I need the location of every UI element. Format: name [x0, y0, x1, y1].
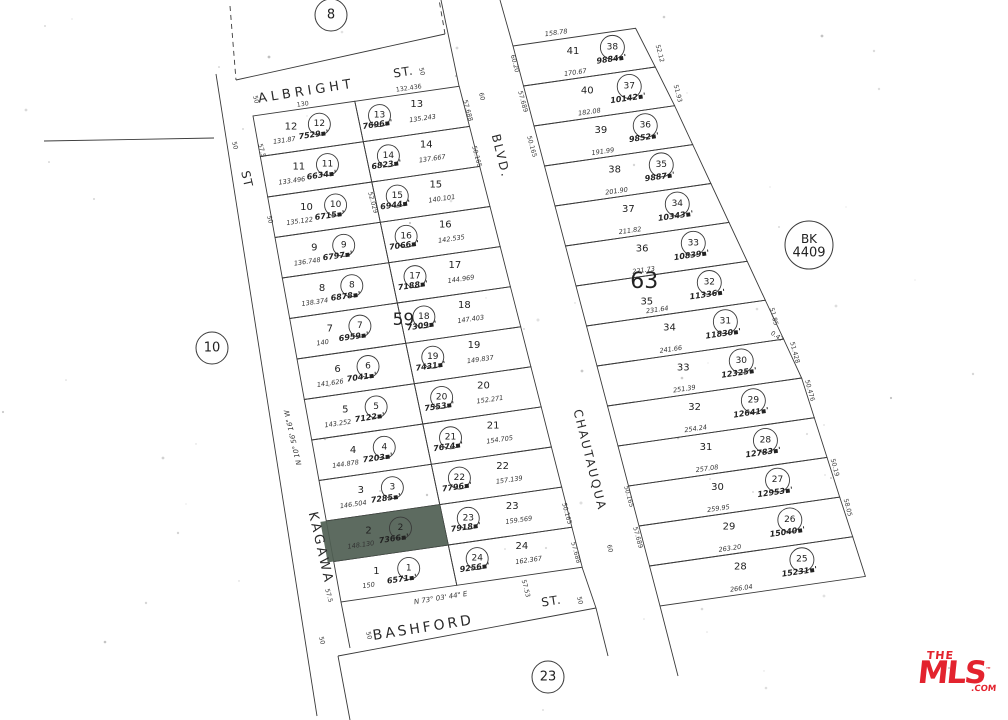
lot-number: 29 — [723, 522, 736, 533]
lot-dimension: 263.20 — [718, 543, 742, 554]
edge-dimension-label: 60 — [477, 92, 486, 102]
scan-speckle — [778, 226, 780, 228]
lot-9 — [275, 222, 389, 278]
lot-circle-number: 28 — [760, 436, 772, 446]
lot-circle-number: 25 — [796, 555, 807, 565]
lot-circle-number: 36 — [640, 121, 652, 131]
scan-speckle — [523, 328, 525, 330]
lot-33 — [597, 339, 802, 406]
edge-dimension-label: 57.689 — [516, 90, 528, 113]
lot-dimension: 146.504 — [339, 499, 367, 511]
edge-dimension-label: 52.029 — [366, 191, 378, 214]
scan-speckle — [485, 297, 486, 298]
lot-circle-number: 26 — [784, 515, 796, 525]
lot-area: 7918▪' — [450, 521, 481, 534]
lot-number: 31 — [700, 442, 713, 453]
lot-circle-number: 32 — [704, 278, 715, 288]
lot-area: 7553▪' — [424, 400, 455, 413]
scan-speckle — [756, 308, 759, 311]
scan-speckle — [195, 443, 196, 444]
lot-number: 12 — [285, 121, 298, 132]
lot-area: 7203▪' — [362, 451, 393, 464]
lot-15 — [372, 166, 490, 222]
lot-circle-number: 12 — [314, 119, 325, 129]
lot-area: 11336▪' — [689, 287, 726, 301]
scan-speckle — [707, 362, 708, 363]
lot-number: 17 — [449, 260, 462, 271]
bottom-block-east-edge — [596, 608, 608, 656]
lot-38 — [545, 145, 711, 206]
lot-dimension: 211.82 — [618, 225, 642, 236]
lot-dimension: 136.748 — [293, 256, 321, 268]
lot-31 — [618, 418, 827, 486]
lot-dimension: 266.04 — [730, 583, 754, 594]
lot-number: 41 — [567, 46, 580, 57]
lot-dimension: 254.24 — [684, 423, 708, 434]
scan-speckle — [846, 207, 847, 208]
scan-speckle — [765, 687, 768, 690]
lot-number: 21 — [487, 421, 500, 432]
edge-dimension-label: 57.688 — [461, 99, 473, 122]
lot-number: 19 — [468, 340, 481, 351]
lot-area: 9852▪' — [628, 131, 659, 144]
scan-speckle — [769, 186, 770, 187]
lot-dimension: 143.252 — [324, 418, 352, 430]
lot-13 — [355, 86, 470, 141]
scan-speckle — [426, 494, 428, 496]
lot-circle-number: 34 — [672, 199, 684, 209]
lot-number: 14 — [420, 139, 433, 150]
edge-dimension-label: 50.165 — [470, 145, 482, 168]
lot-7 — [290, 303, 406, 359]
scan-speckle — [409, 222, 411, 224]
lot-area: 6797▪' — [322, 249, 353, 262]
lot-dimension: 162.367 — [515, 554, 544, 566]
lot-16 — [380, 207, 500, 263]
lot-circle-number: 33 — [688, 238, 699, 248]
lot-circle-number: 11 — [322, 160, 333, 170]
lot-22 — [431, 447, 561, 505]
lot-14 — [363, 126, 479, 182]
scan-speckle — [537, 319, 540, 322]
edge-dimension-label: 0.47 — [769, 330, 785, 344]
mls-logo-tm: ™ — [985, 667, 992, 674]
lot-area: 15040▪' — [769, 525, 806, 539]
lot-area: 6944▪' — [380, 198, 411, 211]
lot-8 — [282, 263, 397, 319]
edge-dimension-label: 130 — [296, 100, 309, 109]
lot-area: 10839▪' — [673, 248, 710, 262]
top-block-east-edge — [437, 0, 445, 34]
lot-number: 2 — [365, 526, 371, 537]
lot-circle-number: 30 — [736, 356, 748, 366]
scan-speckle — [701, 608, 704, 611]
lot-dimension: 131.87 — [273, 135, 297, 146]
lot-41-top-dimension: 158.78 — [544, 27, 568, 38]
street-name-st: ST — [238, 169, 255, 189]
lot-17 — [389, 247, 511, 303]
lot-dimension: 144.878 — [332, 458, 360, 470]
lot-number: 28 — [734, 562, 747, 573]
lot-20 — [414, 367, 541, 424]
block-marker-number: 8 — [327, 8, 335, 23]
lot-number: 10 — [300, 202, 313, 213]
bk-marker-line2: 4409 — [792, 246, 825, 261]
lot-circle-number: 27 — [772, 475, 783, 485]
lot-dimension: 170.67 — [564, 67, 588, 78]
scan-speckle — [2, 411, 4, 413]
scan-speckle — [177, 532, 179, 534]
scan-speckle — [878, 88, 880, 90]
lot-number: 23 — [506, 501, 519, 512]
lot-19 — [406, 327, 531, 384]
lot-area: 12783▪' — [745, 445, 782, 459]
lot-dimension: 144.969 — [447, 273, 475, 285]
lot-number: 8 — [319, 283, 325, 294]
scan-speckle — [643, 618, 645, 620]
edge-dimension-label: 50.165 — [560, 502, 572, 525]
lot-18 — [397, 287, 520, 344]
scan-speckle — [25, 109, 28, 112]
edge-dimension-label: 60 — [605, 544, 614, 554]
scan-speckle — [504, 548, 506, 550]
scan-speckle — [873, 50, 875, 52]
lot-area: 7122▪' — [354, 411, 385, 424]
lot-30 — [629, 457, 840, 526]
lot-area: 7188▪' — [397, 279, 428, 292]
lot-circle-number: 1 — [406, 563, 412, 573]
plat-map: 12127529▪'131.8711116634▪'133.4961010671… — [0, 0, 1008, 720]
scan-speckle — [65, 379, 67, 381]
street-name-blvd: BLVD. — [489, 133, 513, 180]
lot-number: 24 — [516, 541, 529, 552]
lot-number: 9 — [311, 243, 317, 254]
lot-area: 7796▪' — [441, 480, 472, 493]
scan-speckle — [824, 474, 826, 476]
lot-circle-number: 31 — [720, 317, 731, 327]
scan-speckle — [145, 602, 147, 604]
scan-speckle — [763, 670, 764, 671]
lot-dimension: 141.626 — [316, 377, 344, 389]
scan-speckle — [633, 164, 635, 166]
edge-dimension-label: 51.93 — [672, 84, 683, 103]
lot-dimension: 138.374 — [301, 296, 329, 308]
lot-number: 38 — [608, 165, 621, 176]
scan-speckle — [580, 502, 583, 505]
scan-speckle — [456, 47, 459, 50]
mls-logo-wordmark: MLS™ — [917, 661, 1006, 686]
lot-number: 20 — [477, 380, 490, 391]
lot-circle-number: 8 — [349, 281, 355, 291]
scan-speckle — [823, 424, 824, 425]
lot-35 — [576, 261, 765, 326]
lot-6 — [297, 343, 414, 399]
lot-circle-number: 35 — [656, 160, 667, 170]
lot-10 — [268, 182, 381, 238]
lot-dimension: 147.403 — [457, 313, 485, 325]
chautauqua-east-extension-north — [500, 0, 513, 46]
edge-dimension-label: 57.688 — [569, 541, 581, 564]
lot-area: 7431▪' — [415, 360, 446, 373]
lot-area: 12325▪' — [721, 366, 758, 380]
lot-dimension: 135.243 — [409, 113, 437, 125]
edge-dimension-label: 50 — [575, 596, 584, 606]
lot-area: 7674▪' — [433, 440, 464, 453]
lot-area: 6878▪' — [330, 290, 361, 303]
lot-area: 7066▪' — [389, 239, 420, 252]
street-name-chautauqua: CHAUTAUQUA — [570, 408, 609, 513]
edge-dimension-label: 50 — [230, 141, 239, 151]
scan-speckle — [663, 16, 666, 19]
scan-speckle — [379, 490, 381, 492]
edge-dimension-label: 57.689 — [631, 526, 643, 549]
scan-speckle — [218, 66, 220, 68]
scan-speckle — [93, 198, 95, 200]
scan-speckle — [752, 491, 754, 493]
edge-dimension-label: 50.165 — [525, 135, 537, 158]
kagawa-east-extension — [341, 602, 350, 648]
edge-dimension-label: 50 — [417, 67, 426, 77]
lot-area: 6634▪' — [306, 168, 337, 181]
lot-number: 15 — [429, 180, 442, 191]
chautauqua-west-extension-north — [441, 0, 459, 86]
lot-dimension: 150 — [362, 580, 375, 590]
lot-area: 7529▪' — [298, 128, 329, 141]
lot-area: 12641▪' — [733, 406, 770, 420]
lot-5 — [304, 384, 423, 440]
lot-area: 12953▪' — [757, 485, 794, 499]
lot-dimension: 182.08 — [578, 106, 602, 117]
lot-area: 9256▪' — [459, 561, 490, 574]
lot-area: 7285▪' — [370, 492, 401, 505]
scan-speckle — [681, 377, 684, 380]
lot-dimension: 191.99 — [591, 146, 615, 157]
edge-dimension-label: 57.53 — [520, 579, 531, 598]
lot-circle-number: 29 — [748, 396, 760, 406]
lot-number: 34 — [663, 323, 676, 334]
scan-speckle — [48, 161, 50, 163]
lot-area: 6715▪' — [314, 209, 345, 222]
lot-number: 36 — [636, 244, 649, 255]
lot-number: 18 — [458, 300, 471, 311]
lot-area: 15231▪' — [781, 565, 818, 579]
edge-dimension-label: 57.5 — [323, 588, 333, 603]
scan-speckle — [830, 477, 832, 479]
lot-area: 9887▪' — [644, 170, 675, 183]
scan-speckle — [268, 56, 271, 59]
lot-number: 39 — [595, 125, 608, 136]
lot-number: 37 — [622, 204, 635, 215]
edge-dimension-label: 50 — [317, 636, 326, 646]
lot-circle-number: 4 — [381, 442, 387, 452]
scan-speckle — [581, 370, 584, 373]
lot-area: 7696▪' — [362, 118, 393, 131]
scan-speckle — [806, 433, 808, 435]
lot-dimension: 135.122 — [286, 215, 314, 227]
block-marker-number: 23 — [540, 670, 557, 685]
lot-24 — [448, 527, 582, 585]
lot-number: 11 — [292, 162, 305, 173]
scan-speckle — [44, 25, 46, 27]
scan-speckle — [914, 279, 915, 280]
lot-area: 10142▪' — [610, 91, 647, 105]
lot-39 — [534, 106, 693, 166]
lot-dimension: 133.496 — [278, 175, 306, 187]
lot-area: 9884▪' — [596, 53, 627, 66]
scan-speckle — [242, 128, 244, 130]
block-marker-number: 10 — [204, 341, 221, 356]
lot-number: 33 — [677, 362, 690, 373]
bearing-label: N 73° 03' 44" E — [413, 590, 468, 606]
edge-dimension-label: 60.20 — [509, 54, 520, 73]
lot-circle-number: 7 — [357, 321, 363, 331]
scan-speckle — [686, 92, 687, 93]
lot-circle-number: 37 — [623, 82, 634, 92]
lot-dimension: 257.08 — [695, 463, 719, 474]
lot-4 — [312, 424, 432, 481]
lot-number: 7 — [327, 324, 333, 335]
scan-speckle — [341, 31, 344, 34]
edge-dimension-label: 57.5 — [256, 143, 266, 158]
lot-40 — [524, 67, 675, 126]
bk-marker-line1: BK — [801, 232, 818, 246]
edge-dimension-label: 50.476 — [803, 379, 815, 402]
lot-number: 32 — [688, 402, 701, 413]
lot-area: 10343▪' — [657, 209, 694, 223]
lot-dimension: 201.90 — [605, 186, 629, 197]
lot-dimension: 142.535 — [438, 233, 466, 245]
street-name-bashford: BASHFORD — [372, 612, 475, 644]
scan-speckle — [162, 457, 165, 460]
lot-number: 40 — [581, 86, 594, 97]
top-block-west-edge — [230, 6, 236, 80]
lot-dimension: 159.569 — [505, 514, 533, 526]
lot-21 — [423, 407, 552, 464]
lot-dimension: 259.95 — [707, 503, 731, 514]
scan-speckle — [542, 709, 544, 711]
lot-dimension: 137.667 — [418, 153, 447, 165]
scan-speckle — [71, 18, 72, 19]
lot-28 — [650, 537, 866, 606]
scan-speckle — [238, 580, 239, 581]
street-name-st: ST. — [540, 593, 562, 610]
mls-logo: THE MLS™ .COM — [916, 650, 1007, 694]
lot-dimension: 241.66 — [659, 344, 683, 355]
lot-dimension: 140.101 — [428, 193, 456, 205]
lot-dimension: 157.139 — [495, 474, 523, 486]
bearing-label: N 10° 56' 16" W — [283, 408, 304, 466]
edge-dimension-label: 51.85 — [768, 307, 779, 326]
lot-dimension: 140 — [316, 338, 329, 348]
lot-number: 6 — [334, 364, 340, 375]
lot-number: 22 — [496, 461, 509, 472]
scan-speckle — [306, 115, 307, 116]
scan-speckle — [574, 302, 575, 303]
scan-speckle — [104, 641, 107, 644]
lot-area: 6959▪' — [338, 330, 369, 343]
lot-circle-number: 3 — [390, 483, 396, 493]
lot-29 — [639, 497, 853, 566]
lot-circle-number: 2 — [398, 523, 404, 533]
street-name-st: ST. — [392, 64, 414, 81]
lot-dimension: 149.837 — [466, 353, 495, 365]
scan-speckle — [823, 595, 826, 598]
edge-dimension-label: 52.12 — [654, 44, 665, 63]
chautauqua-east-extension-south — [660, 606, 678, 676]
scan-speckle — [709, 478, 711, 480]
lot-circle-number: 9 — [341, 240, 347, 250]
block-63-label: 63 — [630, 269, 658, 294]
lot-number: 4 — [350, 445, 356, 456]
lot-area: 7041▪' — [346, 370, 377, 383]
block10-corner-line — [44, 138, 214, 141]
lot-34 — [587, 300, 784, 366]
lot-number: 5 — [342, 404, 348, 415]
lot-number: 3 — [358, 485, 364, 496]
lot-dimension: 251.39 — [673, 383, 697, 394]
scan-speckle — [972, 373, 974, 375]
lot-circle-number: 6 — [365, 362, 371, 372]
edge-dimension-label: 50 — [364, 631, 373, 641]
scan-speckle — [835, 305, 838, 308]
lot-area: 11830▪' — [705, 327, 742, 341]
lot-area: 6571▪' — [386, 572, 417, 585]
lot-area: 6823▪' — [371, 158, 402, 171]
block-59-label: 59 — [393, 310, 415, 330]
bottom-block-west-edge — [338, 656, 350, 720]
lot-11 — [260, 142, 372, 197]
lot-number: 16 — [439, 220, 452, 231]
lot-circle-number: 38 — [607, 42, 619, 52]
lot-32 — [608, 378, 815, 446]
scan-speckle — [185, 503, 186, 504]
lot-number: 1 — [373, 566, 379, 577]
edge-dimension-label: 50.165 — [622, 485, 634, 508]
lot-dimension: 152.271 — [476, 394, 504, 406]
lot-circle-number: 5 — [373, 402, 379, 412]
scan-speckle — [890, 397, 892, 399]
scan-speckle — [706, 631, 708, 633]
scan-speckle — [545, 547, 547, 549]
lot-12 — [253, 101, 363, 156]
highlighted-lot-2 — [320, 505, 448, 563]
lot-dimension: 154.705 — [486, 434, 514, 446]
lot-number: 30 — [711, 482, 724, 493]
plat-map-canvas: 12127529▪'131.8711116634▪'133.4961010671… — [0, 0, 1008, 720]
scan-speckle — [821, 35, 824, 38]
lot-number: 13 — [410, 99, 423, 110]
